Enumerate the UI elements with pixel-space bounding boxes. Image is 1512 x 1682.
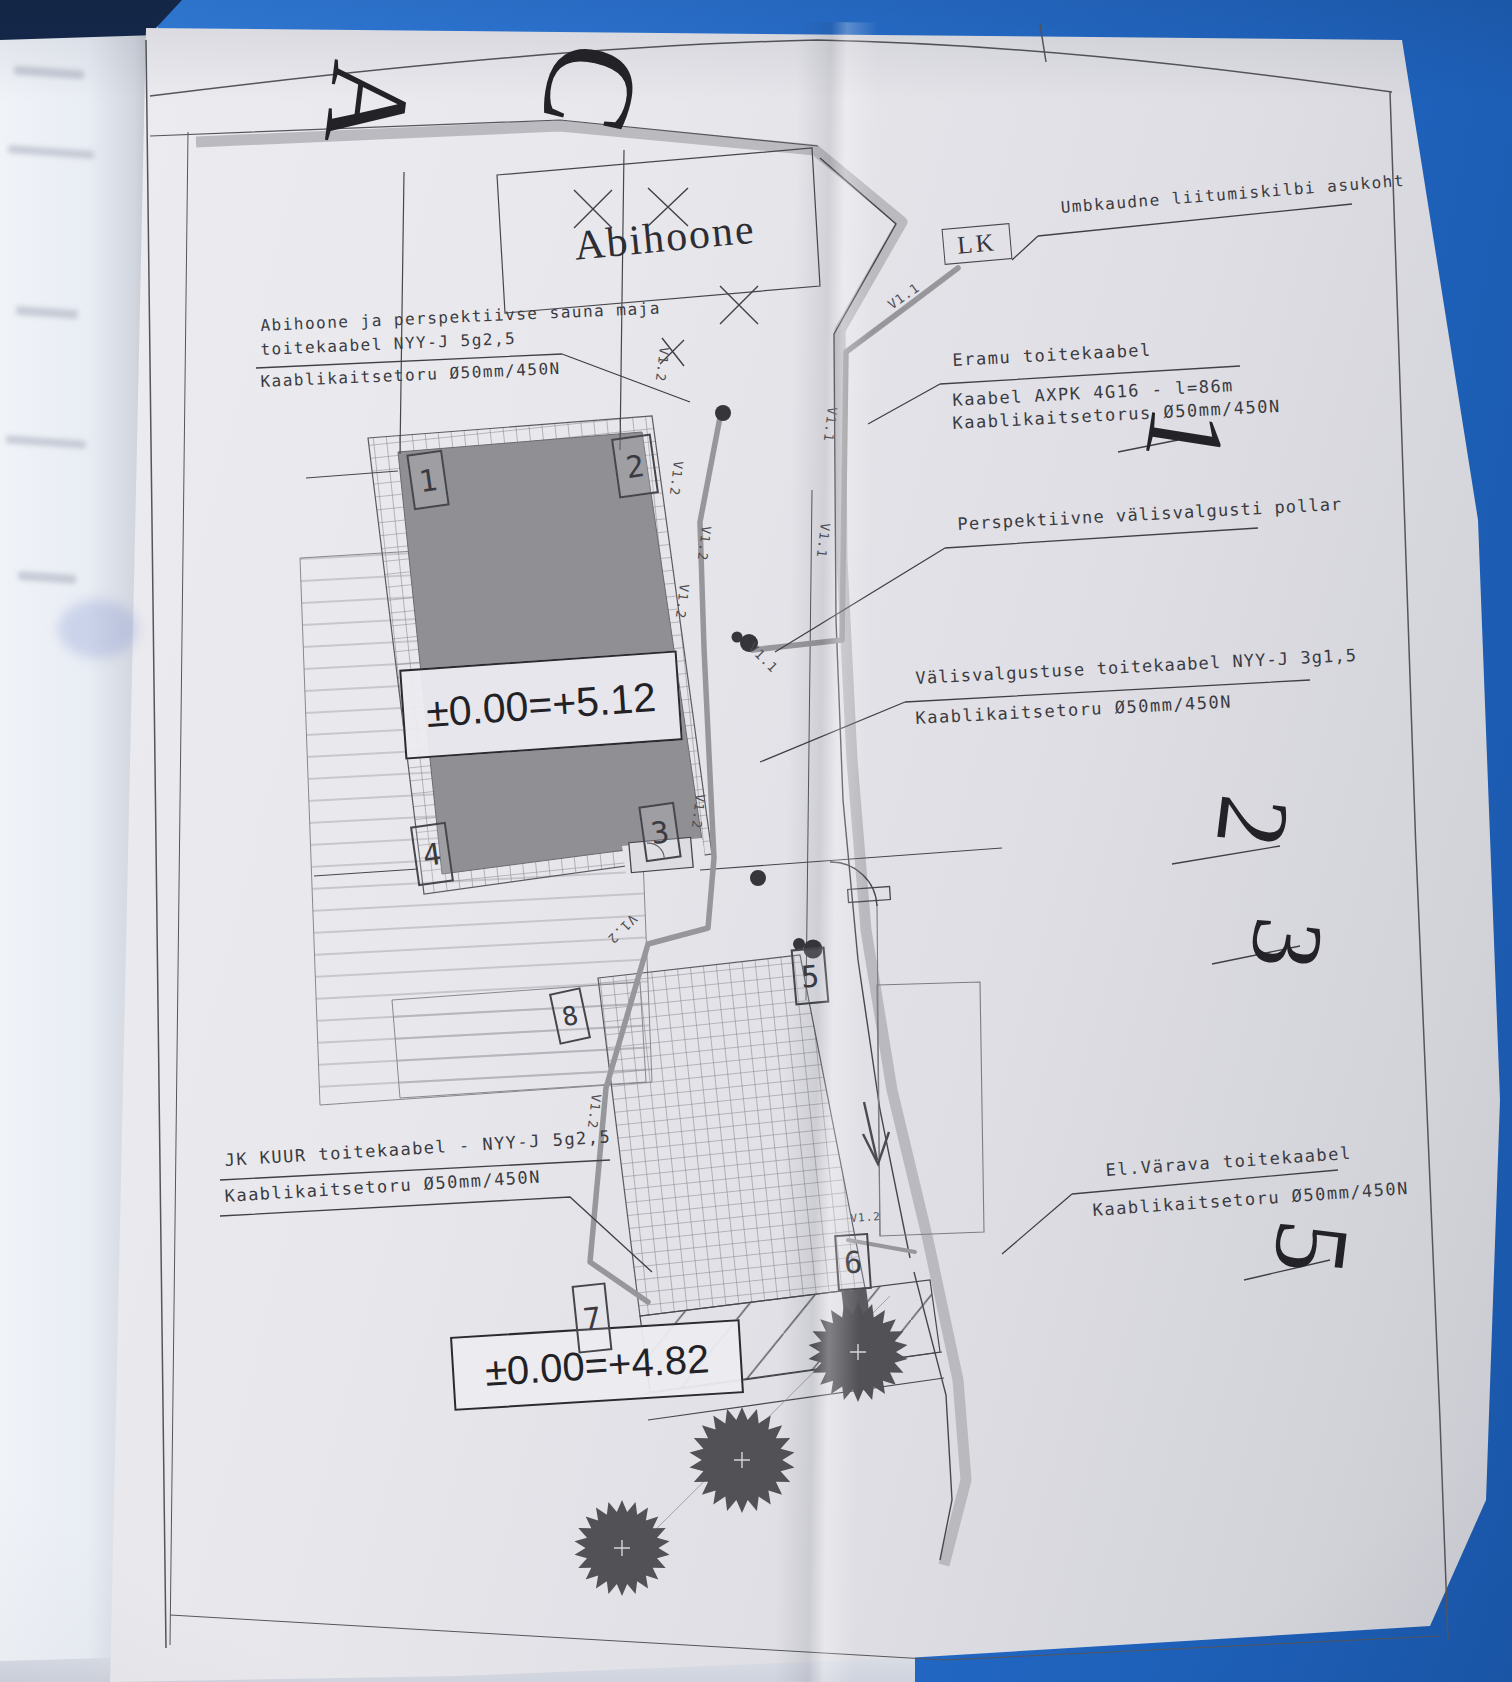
- corner-marker-7: 7: [572, 1282, 613, 1353]
- photo-of-site-plan: A C 1 2 3 5 Abihoone ±0.00=+5.12 ±0.00=+…: [0, 0, 1512, 1682]
- corner-marker-3: 3: [638, 802, 681, 862]
- corner-marker-2: 2: [611, 434, 659, 499]
- corner-marker-1: 1: [406, 450, 449, 510]
- grid-axis-letter-a: A: [297, 55, 438, 154]
- connection-cabinet-box: LK: [942, 223, 1013, 265]
